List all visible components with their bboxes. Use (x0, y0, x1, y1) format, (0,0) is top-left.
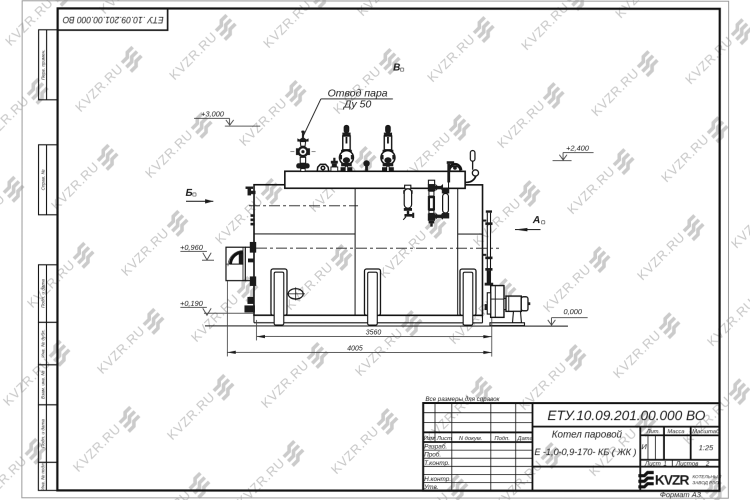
svg-text:Масштаб: Масштаб (692, 429, 720, 435)
svg-text:Листов: Листов (675, 461, 699, 468)
svg-text:KVZR.RU: KVZR.RU (0, 453, 30, 500)
svg-text:Все размеры для справок: Все размеры для справок (425, 396, 500, 403)
svg-text:Изм.: Изм. (424, 436, 436, 442)
svg-text:Справ. №: Справ. № (40, 169, 45, 190)
svg-text:Масса: Масса (667, 429, 685, 435)
svg-text:В: В (393, 63, 400, 74)
svg-text:1: 1 (663, 461, 666, 468)
svg-text:Подп. и дата: Подп. и дата (40, 419, 45, 448)
svg-text:KVZR.RU: KVZR.RU (282, 259, 336, 313)
svg-text:Разраб.: Разраб. (424, 443, 447, 451)
svg-text:KVZR.RU: KVZR.RU (376, 227, 430, 281)
svg-text:4005: 4005 (347, 345, 363, 352)
svg-text:KVZR.RU: KVZR.RU (234, 455, 288, 500)
svg-text:KVZR.RU: KVZR.RU (48, 159, 102, 213)
svg-text:KVZR.RU: KVZR.RU (516, 359, 570, 413)
svg-text:KVZR.RU: KVZR.RU (2, 0, 56, 49)
svg-text:Перв. примен.: Перв. примен. (40, 50, 45, 81)
svg-text:KVZR.RU: KVZR.RU (494, 97, 548, 151)
svg-text:KVZR.RU: KVZR.RU (492, 457, 546, 500)
svg-text:KVZR.RU: KVZR.RU (588, 65, 642, 119)
svg-text:И: И (641, 442, 647, 451)
svg-text:KVZR.RU: KVZR.RU (728, 197, 750, 251)
svg-text:1:25: 1:25 (699, 443, 714, 452)
svg-text:Котел паровой: Котел паровой (552, 430, 623, 441)
svg-text:Лист: Лист (644, 461, 661, 468)
svg-text:Проб.: Проб. (424, 451, 441, 459)
svg-text:Ду 50: Ду 50 (343, 98, 372, 110)
svg-text:N докум.: N докум. (459, 436, 482, 442)
svg-text:Дата: Дата (516, 436, 533, 442)
svg-text:KVZR.RU: KVZR.RU (0, 355, 54, 409)
svg-text:Н.контр.: Н.контр. (424, 476, 451, 483)
svg-text:ЕТУ.10.09.201.00.000 ВО: ЕТУ.10.09.201.00.000 ВО (547, 408, 705, 423)
svg-text:+0,190: +0,190 (180, 299, 204, 308)
svg-text:+3,000: +3,000 (201, 109, 225, 118)
svg-text:+2,400: +2,400 (566, 144, 590, 153)
svg-text:KVZR.RU: KVZR.RU (328, 423, 382, 477)
svg-text:Е -1,0-0,9-170- КБ ( ЖК ): Е -1,0-0,9-170- КБ ( ЖК ) (534, 447, 636, 457)
svg-text:KVZR.RU: KVZR.RU (118, 225, 172, 279)
svg-text:KVZR.RU: KVZR.RU (424, 31, 478, 85)
svg-text:Формат А3: Формат А3 (660, 490, 702, 499)
svg-text:KVZR.RU: KVZR.RU (564, 163, 618, 217)
svg-text:+0,960: +0,960 (180, 243, 204, 252)
svg-text:KVZR.RU: KVZR.RU (212, 193, 266, 247)
svg-text:Подп.: Подп. (494, 436, 509, 442)
svg-text:Утв.: Утв. (423, 484, 439, 491)
svg-text:KVZR.RU: KVZR.RU (72, 61, 126, 115)
svg-text:2: 2 (705, 461, 710, 468)
svg-text:KVZR.RU: KVZR.RU (166, 29, 220, 83)
svg-text:Подп. и дата: Подп. и дата (40, 279, 45, 308)
svg-text:KVZR.RU: KVZR.RU (70, 421, 124, 475)
svg-text:ЗАВОД РЭП: ЗАВОД РЭП (692, 480, 719, 485)
svg-text:KVZR.RU: KVZR.RU (0, 191, 8, 245)
svg-text:KVZR.RU: KVZR.RU (612, 0, 666, 21)
svg-text:KVZR.RU: KVZR.RU (634, 229, 688, 283)
svg-text:KVZR.RU: KVZR.RU (470, 195, 524, 249)
svg-text:Т.контр.: Т.контр. (424, 460, 450, 467)
svg-text:KVZR.RU: KVZR.RU (658, 131, 712, 185)
svg-text:KVZR.RU: KVZR.RU (236, 95, 290, 149)
svg-text:Б: Б (186, 188, 193, 199)
svg-text:Взам. инв. №: Взам. инв. № (40, 371, 45, 399)
svg-text:3560: 3560 (366, 330, 382, 337)
svg-text:KVZR: KVZR (655, 473, 690, 488)
svg-text:КОТЕЛЬНЫЙ: КОТЕЛЬНЫЙ (692, 472, 722, 479)
svg-text:Инв. № подл.: Инв. № подл. (40, 462, 45, 491)
svg-text:Инв. № дубл.: Инв. № дубл. (40, 329, 45, 357)
svg-text:KVZR.RU: KVZR.RU (258, 357, 312, 411)
svg-text:KVZR.RU: KVZR.RU (94, 323, 148, 377)
svg-text:KVZR.RU: KVZR.RU (0, 93, 32, 147)
svg-text:KVZR.RU: KVZR.RU (142, 127, 196, 181)
svg-text:А: А (532, 214, 541, 226)
svg-text:KVZR.RU: KVZR.RU (164, 389, 218, 443)
svg-text:0,000: 0,000 (563, 307, 582, 316)
svg-text:KVZR.RU: KVZR.RU (704, 295, 750, 349)
svg-text:KVZR.RU: KVZR.RU (682, 33, 736, 87)
svg-text:Лист: Лист (436, 436, 452, 442)
svg-text:ЕТУ .10.09.201.00.000 ВО: ЕТУ .10.09.201.00.000 ВО (62, 14, 163, 25)
svg-text:KVZR.RU: KVZR.RU (610, 327, 664, 381)
svg-text:Лит.: Лит. (645, 429, 660, 435)
